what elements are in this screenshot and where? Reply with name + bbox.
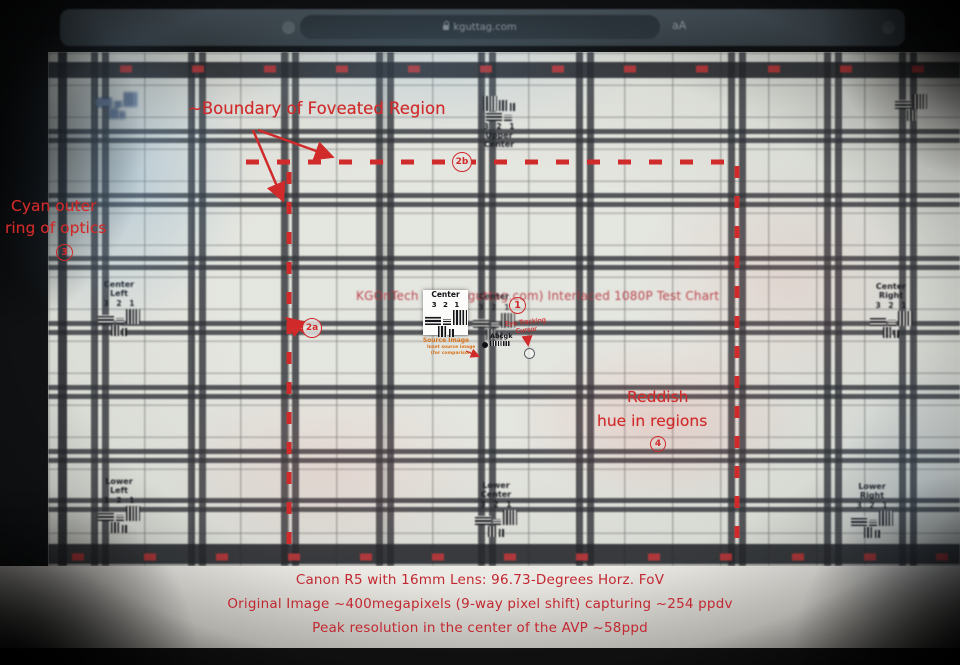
pattern-block-center-left: Center Left 3 2 1 — [96, 281, 142, 336]
inset-caption-sub1: Inset source image — [427, 345, 473, 350]
pattern-block-lower-right: Lower Right 3 2 1 — [849, 483, 895, 538]
black-dot-icon — [482, 342, 488, 348]
letters-sample-group: Abcgk — [482, 333, 513, 348]
chart-title: KGOnTech (www.kguttag.com) Interlaced 10… — [356, 289, 719, 303]
pattern-block-lower-left: Lower Left 3 2 1 — [96, 478, 142, 533]
browser-bar: kguttag.com aA — [60, 9, 905, 46]
pattern-block-lower-center: Lower Center 3 2 1 — [473, 482, 519, 537]
inset-caption-sub2: (for comparison) — [429, 351, 475, 356]
url-text: kguttag.com — [453, 22, 516, 33]
eye-tracking-cursor-icon — [524, 348, 535, 359]
text-size-button[interactable]: aA — [672, 19, 686, 32]
inset-caption: Source Image — [419, 337, 473, 344]
letters-sample: Abcgk — [490, 333, 513, 340]
pattern-block-upper-left — [94, 92, 140, 119]
caption-strip — [0, 566, 960, 648]
toolbar-button-right-icon[interactable] — [882, 21, 895, 34]
address-bar[interactable]: kguttag.com — [300, 15, 660, 39]
headset-photo: kguttag.com aA KGOnTech (www.kguttag.com… — [0, 0, 960, 665]
pattern-block-upper-right — [888, 94, 934, 121]
scale-numbers: 3 2 1 — [484, 122, 515, 131]
letters-sample-bars — [490, 341, 510, 346]
lock-icon — [443, 25, 449, 30]
pattern-block-upper-center: 3 2 1 Upper Center — [476, 96, 522, 149]
bottom-bezel — [0, 648, 960, 665]
test-chart: KGOnTech (www.kguttag.com) Interlaced 10… — [48, 52, 960, 566]
toolbar-button-icon[interactable] — [282, 21, 295, 34]
source-image-inset: Center 3 2 1 — [423, 290, 468, 335]
chart-photo-layer: KGOnTech (www.kguttag.com) Interlaced 10… — [48, 52, 960, 566]
pattern-block-center-right: Center Right 3 2 1 — [868, 283, 914, 338]
